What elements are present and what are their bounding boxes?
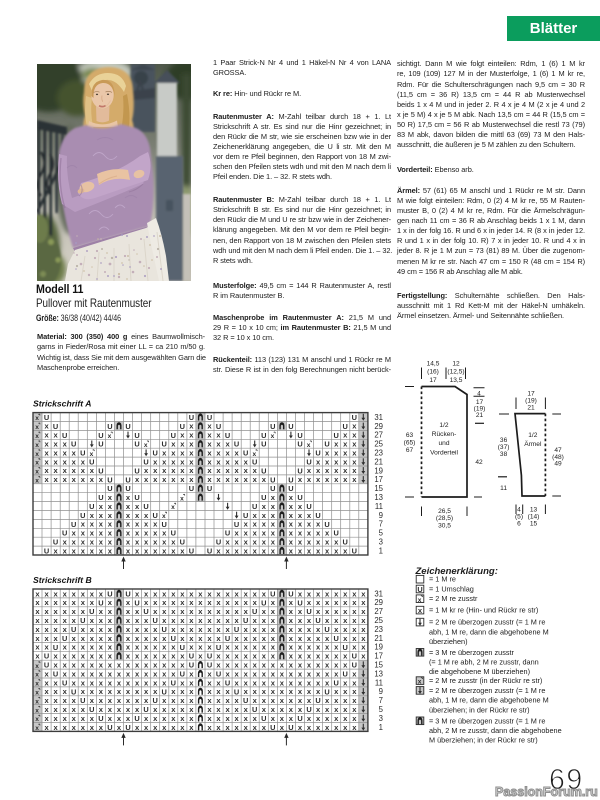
svg-text:15: 15 [530, 520, 538, 527]
svg-text:abh, 1 M re, dann die abgehobe: abh, 1 M re, dann die abgehobene M [429, 627, 549, 636]
svg-text:13,5: 13,5 [450, 377, 463, 384]
svg-text:3: 3 [379, 538, 383, 547]
svg-text:= 3 M re überzogen zusstr: = 3 M re überzogen zusstr [429, 648, 515, 657]
svg-text:5: 5 [379, 705, 384, 714]
svg-text:7: 7 [379, 696, 383, 705]
svg-text:11: 11 [375, 502, 383, 511]
svg-text:9: 9 [379, 687, 383, 696]
svg-text:25: 25 [374, 616, 383, 625]
svg-text:(12,5): (12,5) [447, 369, 464, 376]
svg-text:5: 5 [379, 529, 384, 538]
svg-text:= 1 M kr re (Hin- und Rückr re: = 1 M kr re (Hin- und Rückr re str) [429, 606, 538, 615]
svg-text:29: 29 [374, 598, 383, 607]
svg-text:abh, 2 M re zusstr, dann die a: abh, 2 M re zusstr, dann die abgehobene [429, 726, 562, 735]
svg-text:= 2 M re zusstr (in der Rückr: = 2 M re zusstr (in der Rückr re str) [429, 676, 542, 685]
svg-text:30,5: 30,5 [438, 522, 451, 529]
svg-text:Ärmel: Ärmel [524, 440, 542, 448]
svg-text:die abgehobene M überziehen): die abgehobene M überziehen) [429, 667, 530, 676]
svg-text:17: 17 [429, 377, 437, 384]
svg-text:21: 21 [374, 634, 383, 643]
svg-text:67: 67 [406, 447, 414, 454]
svg-text:42: 42 [475, 459, 483, 466]
svg-text:31: 31 [374, 413, 383, 422]
svg-text:13: 13 [530, 507, 538, 514]
svg-text:(19): (19) [525, 397, 537, 404]
svg-text:Strickschrift A: Strickschrift A [33, 398, 91, 408]
svg-text:(65): (65) [404, 440, 416, 447]
svg-text:27: 27 [374, 431, 383, 440]
svg-text:21: 21 [476, 412, 484, 419]
svg-text:6: 6 [517, 520, 521, 527]
svg-text:überziehen; in der Rückr re st: überziehen; in der Rückr re str) [429, 705, 530, 714]
svg-text:17: 17 [374, 652, 383, 661]
svg-text:= 2 M re zusstr: = 2 M re zusstr [429, 594, 478, 603]
svg-text:(= 1 M re abh, 2 M re zusstr,: (= 1 M re abh, 2 M re zusstr, dann [429, 658, 539, 667]
svg-text:25: 25 [374, 440, 383, 449]
svg-text:11: 11 [500, 485, 507, 492]
svg-text:29: 29 [374, 422, 383, 431]
svg-text:abh, 1 M re, dann die abgehobe: abh, 1 M re, dann die abgehobene M [429, 696, 549, 705]
svg-text:15: 15 [374, 484, 383, 493]
svg-text:Vorderteil: Vorderteil [430, 449, 458, 456]
svg-text:27: 27 [374, 607, 383, 616]
svg-text:1: 1 [379, 723, 383, 732]
svg-text:= 3 M re überzogen zusstr (= 1: = 3 M re überzogen zusstr (= 1 M re [429, 716, 545, 725]
svg-text:(37): (37) [498, 444, 510, 451]
svg-text:14,5: 14,5 [427, 360, 440, 367]
svg-text:19: 19 [374, 643, 383, 652]
svg-text:13: 13 [374, 493, 383, 502]
svg-text:M überziehen; in der Rückr re: M überziehen; in der Rückr re str) [429, 736, 538, 745]
svg-text:und: und [438, 440, 449, 447]
svg-text:1/2: 1/2 [439, 422, 448, 429]
svg-text:17: 17 [527, 390, 535, 397]
svg-text:Rücken-: Rücken- [432, 431, 457, 438]
svg-text:36: 36 [500, 437, 508, 444]
svg-text:überziehen): überziehen) [429, 637, 468, 646]
svg-text:3: 3 [379, 714, 383, 723]
svg-text:= 1 Umschlag: = 1 Umschlag [429, 585, 474, 594]
svg-text:Zeichenerklärung:: Zeichenerklärung: [415, 566, 498, 577]
svg-text:(16): (16) [427, 369, 439, 376]
svg-text:21: 21 [374, 457, 383, 466]
svg-text:= 1 M re: = 1 M re [429, 575, 456, 584]
svg-text:7: 7 [379, 520, 383, 529]
svg-text:1/2: 1/2 [528, 432, 537, 439]
svg-text:23: 23 [374, 625, 383, 634]
svg-text:Strickschrift B: Strickschrift B [33, 575, 92, 585]
svg-text:38: 38 [500, 451, 508, 458]
svg-text:49: 49 [554, 461, 562, 468]
svg-text:4: 4 [477, 390, 481, 397]
svg-text:21: 21 [527, 404, 535, 411]
svg-text:12: 12 [452, 360, 460, 367]
svg-text:9: 9 [379, 511, 383, 520]
svg-text:15: 15 [374, 661, 383, 670]
svg-text:31: 31 [374, 589, 383, 598]
svg-text:11: 11 [375, 678, 383, 687]
svg-text:47: 47 [554, 447, 562, 454]
svg-text:= 2 M re überzogen zusstr (= 1: = 2 M re überzogen zusstr (= 1 M re [429, 618, 545, 627]
svg-text:4: 4 [517, 507, 521, 514]
svg-text:19: 19 [374, 466, 383, 475]
svg-text:13: 13 [374, 669, 383, 678]
svg-text:1: 1 [379, 546, 383, 555]
svg-text:63: 63 [406, 432, 414, 439]
svg-text:= 2 M re überzogen zusstr (= 1: = 2 M re überzogen zusstr (= 1 M re [429, 686, 545, 695]
svg-text:26,5: 26,5 [438, 508, 451, 515]
svg-text:23: 23 [374, 449, 383, 458]
svg-text:(28,5): (28,5) [436, 515, 453, 522]
svg-text:17: 17 [374, 475, 383, 484]
